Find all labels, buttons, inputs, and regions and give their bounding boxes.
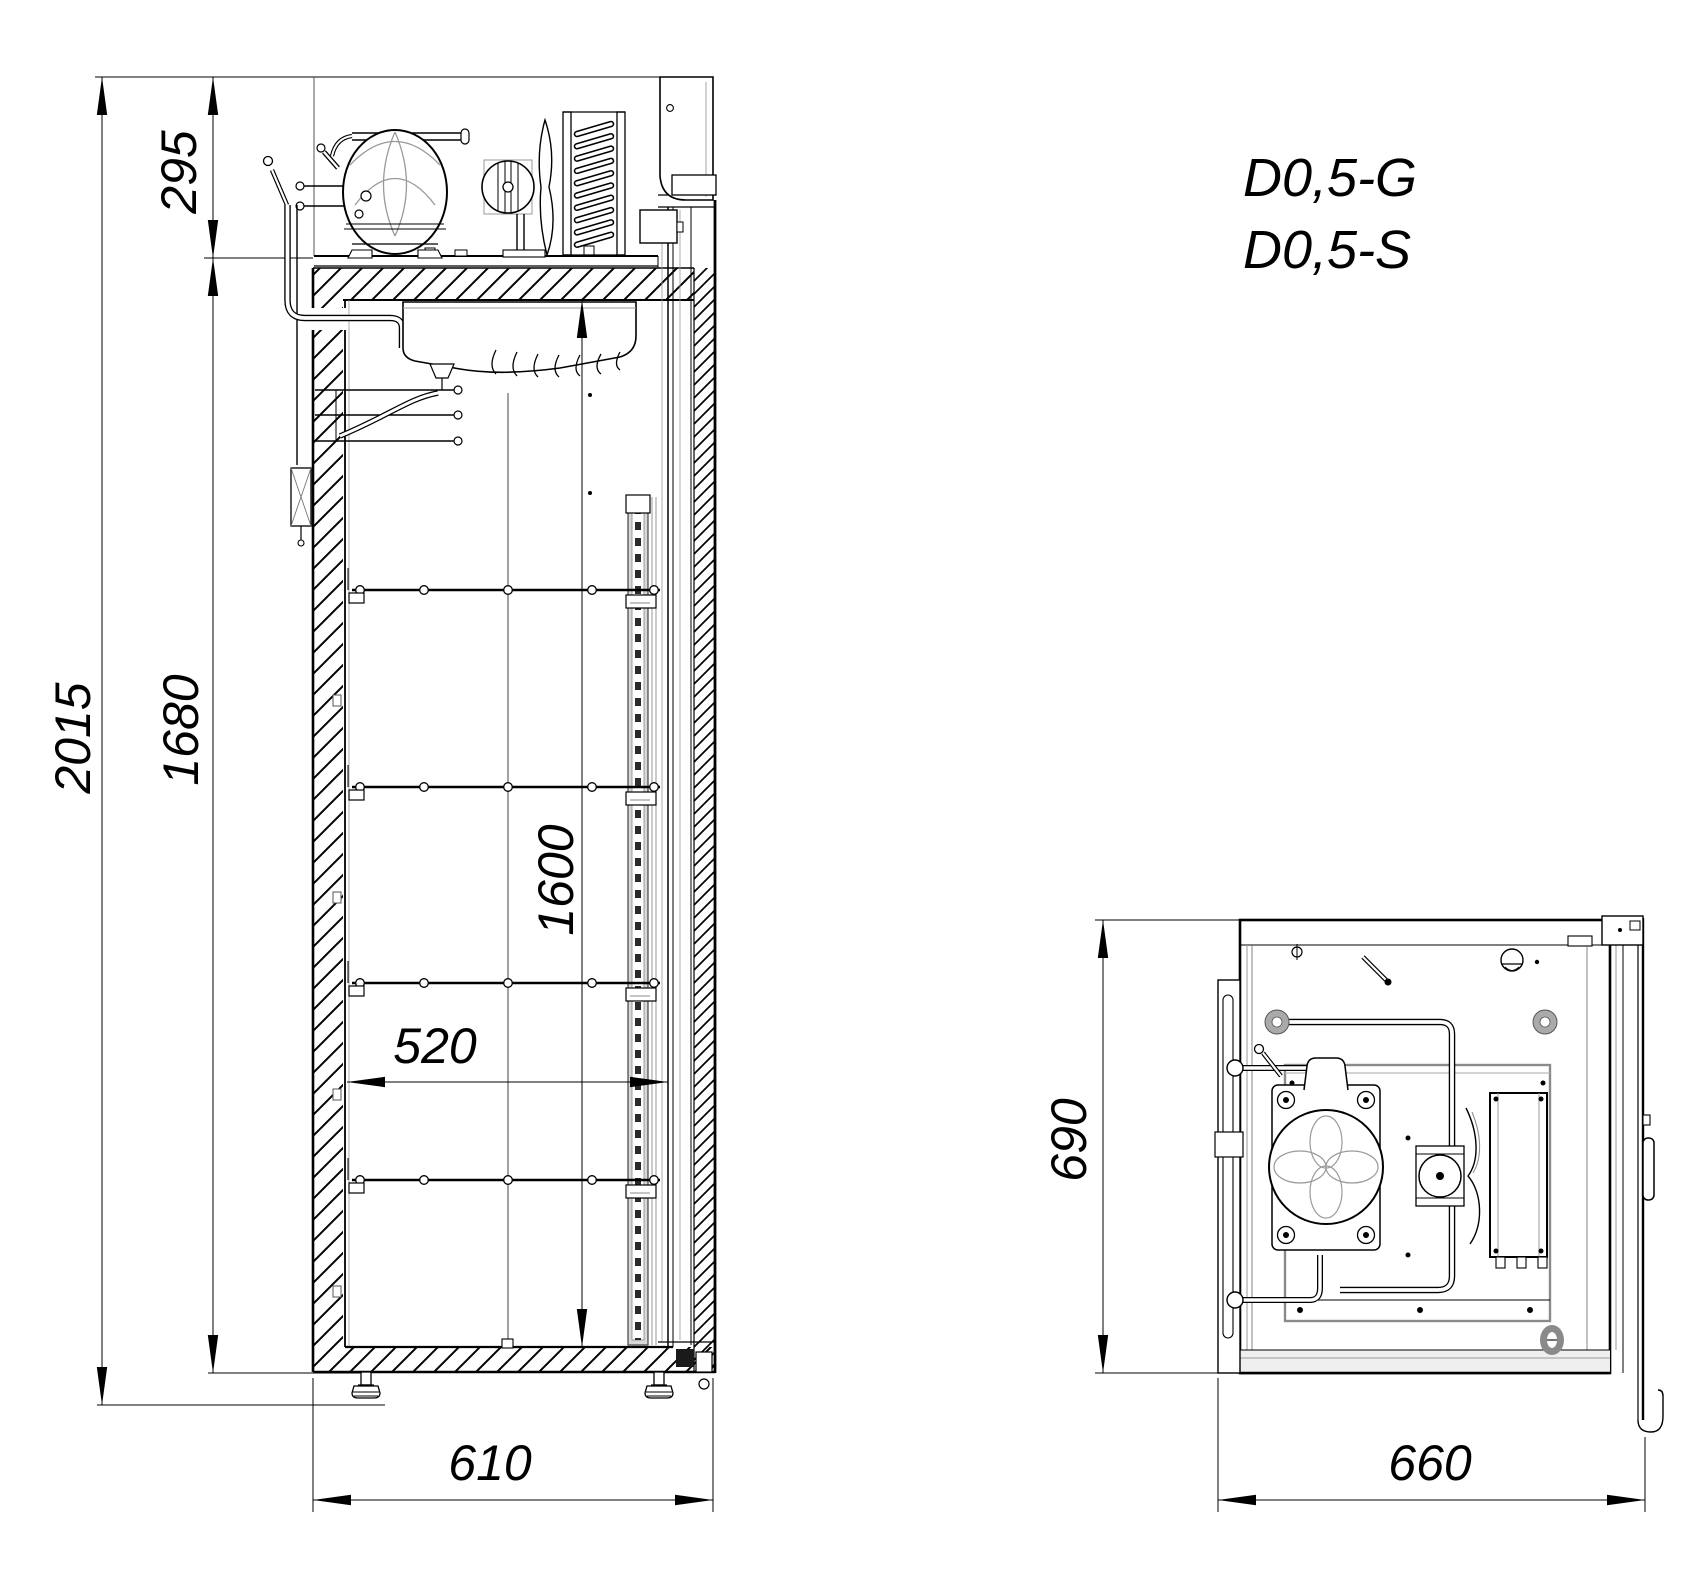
service-valve: [264, 157, 273, 166]
shelf: [348, 765, 660, 805]
refrigerated-cabinet-technical-drawing: 2015 295 1680: [0, 0, 1694, 1586]
door-handle: [1643, 1138, 1654, 1200]
dim-body-depth-label: 610: [448, 1435, 532, 1491]
fan-blade: [539, 120, 553, 255]
rear-insulated-wall: [313, 300, 343, 1347]
dim-top-width-label: 690: [1041, 1098, 1097, 1182]
evaporator: [403, 302, 636, 390]
dim-body-height-label: 1680: [153, 674, 209, 785]
dimension-interior-height: 1600: [528, 300, 587, 1347]
side-section-view: 2015 295 1680: [45, 77, 716, 1512]
cabinet-insulated-walls: [313, 268, 715, 1372]
door-insulation: [694, 268, 714, 1372]
dim-overall-depth-label: 660: [1388, 1435, 1472, 1491]
rear-band: [1215, 980, 1243, 1373]
adjustable-foot: [352, 1372, 380, 1398]
rear-tube-loop: [1223, 995, 1233, 1338]
model-label-1: D0,5-G: [1243, 148, 1417, 208]
model-labels: D0,5-G D0,5-S: [1243, 148, 1417, 280]
condenser-coil-side: [563, 112, 625, 255]
door-bottom-hinge: [676, 1349, 694, 1367]
dimension-total-height: 2015: [45, 77, 107, 1405]
compressor-terminal-box: [1304, 1058, 1348, 1090]
drain-funnel: [430, 364, 454, 378]
dim-interior-height-label: 1600: [528, 824, 584, 935]
shelf: [348, 961, 660, 1001]
thermostat: [291, 468, 311, 546]
drawing-sheet: 2015 295 1680: [0, 0, 1694, 1586]
bottom-insulation-panel: [313, 1347, 715, 1372]
shelf-support-rail: [626, 495, 656, 1345]
compressor-side: [317, 129, 469, 258]
shelf: [348, 568, 660, 608]
dim-compartment-height-label: 295: [151, 130, 207, 215]
condenser-top: [1490, 1093, 1547, 1257]
dimension-top-width: 690: [1041, 920, 1240, 1373]
electrical-box: [640, 210, 677, 243]
dim-interior-depth-label: 520: [393, 1018, 477, 1074]
dimension-overall-depth: 660: [1218, 1378, 1645, 1512]
compartment-front-panel: [640, 77, 716, 243]
shelf: [348, 1158, 660, 1198]
dimension-compartment-and-body-height: 295 1680: [151, 77, 218, 1373]
model-label-2: D0,5-S: [1243, 220, 1411, 280]
dim-total-height-label: 2015: [45, 682, 101, 794]
adjustable-foot: [645, 1372, 673, 1398]
top-view: 690 660: [1041, 916, 1663, 1512]
dimension-body-depth: 610: [313, 1435, 713, 1505]
condenser-fan-side: [482, 120, 553, 257]
top-insulation-panel: [313, 268, 694, 300]
door-bottom-hinge-top: [1638, 1390, 1663, 1432]
